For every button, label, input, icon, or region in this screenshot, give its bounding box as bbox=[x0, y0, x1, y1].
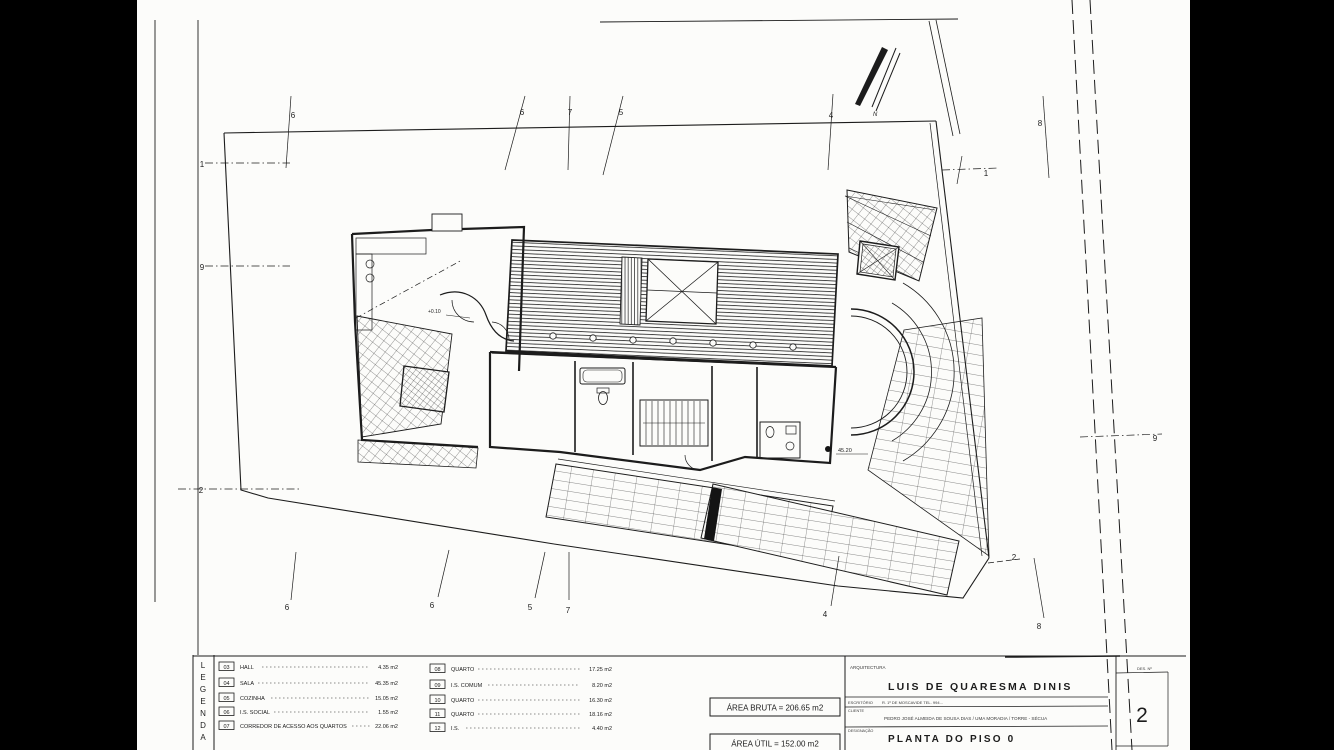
designation: PLANTA DO PISO 0 bbox=[888, 734, 1015, 745]
designation-label: DESIGNAÇÃO bbox=[848, 728, 873, 733]
legend-item-name: I.S. bbox=[451, 726, 460, 732]
grid-marker-top: 6 bbox=[520, 108, 525, 117]
entry-level: +0.10 bbox=[428, 309, 441, 315]
grid-marker-bottom: 6 bbox=[430, 601, 435, 610]
legend-item-name: CORREDOR DE ACESSO AOS QUARTOS bbox=[240, 724, 347, 730]
grid-marker-2: 2 bbox=[1012, 553, 1017, 562]
legend-item-name: QUARTO bbox=[451, 667, 475, 673]
office-label: ESCRITÓRIO bbox=[848, 700, 873, 705]
title-section-label: ARQUITECTURA bbox=[850, 665, 886, 670]
deck-steps bbox=[620, 257, 642, 325]
architect-name: LUIS DE QUARESMA DINIS bbox=[888, 681, 1073, 693]
legend-letter: N bbox=[200, 709, 206, 718]
legend-letter: A bbox=[200, 733, 206, 742]
legend-item-name: COZINHA bbox=[240, 696, 265, 702]
grid-marker-top: 7 bbox=[568, 108, 573, 117]
client-label: CLIENTE bbox=[848, 709, 865, 713]
legend-item-number: 10 bbox=[434, 698, 440, 704]
sheet-number-label: DES. Nº bbox=[1137, 666, 1152, 671]
legend-item-number: 08 bbox=[434, 667, 440, 673]
scanned-drawing-sheet: N bbox=[0, 0, 1334, 750]
north-label: N bbox=[873, 112, 878, 118]
grid-marker-right: 9 bbox=[1153, 434, 1158, 443]
legend-item-name: HALL bbox=[240, 665, 254, 671]
legend-letter: G bbox=[200, 685, 206, 694]
legend-item-area: 18.16 m2 bbox=[589, 712, 612, 718]
legend-item-name: I.S. SOCIAL bbox=[240, 710, 270, 716]
grid-marker-bottom: 8 bbox=[1037, 622, 1042, 631]
legend-item-number: 09 bbox=[434, 683, 440, 689]
legend-letter: E bbox=[200, 697, 205, 706]
grid-marker-bottom: 5 bbox=[528, 603, 533, 612]
legend-item-name: QUARTO bbox=[451, 712, 475, 718]
legend-item-number: 07 bbox=[223, 724, 229, 730]
legend-letter: D bbox=[200, 721, 206, 730]
legend-item-area: 4.35 m2 bbox=[378, 665, 398, 671]
legend-item-area: 4.40 m2 bbox=[592, 726, 612, 732]
legend-item-number: 06 bbox=[223, 710, 229, 716]
grid-marker-top: 8 bbox=[1038, 119, 1043, 128]
client-info: PEDRO JOSÉ ALMEIDA DE SOUSA DIAS / UMA M… bbox=[884, 715, 1048, 721]
legend-item-number: 05 bbox=[223, 696, 229, 702]
deck-terrace bbox=[492, 240, 838, 367]
legend-item-name: QUARTO bbox=[451, 698, 475, 704]
legend-item-name: SALA bbox=[240, 681, 254, 687]
grid-marker-top: 6 bbox=[291, 111, 296, 120]
legend-item-area: 8.20 m2 bbox=[592, 683, 612, 689]
legend-item-number: 11 bbox=[435, 712, 441, 718]
skylight bbox=[646, 259, 718, 324]
legend-item-area: 15.05 m2 bbox=[375, 696, 398, 702]
legend-letter: L bbox=[201, 661, 206, 670]
grid-marker-left: 9 bbox=[200, 263, 205, 272]
legend-item-area: 17.25 m2 bbox=[589, 667, 612, 673]
benchmark-level: 45.20 bbox=[838, 448, 852, 454]
grid-marker-top: 5 bbox=[619, 108, 624, 117]
pool-square bbox=[857, 241, 899, 280]
grid-marker-top: 4 bbox=[829, 111, 834, 120]
office-info: R. 1º DE MOSCAVIDE TEL. 994… bbox=[882, 700, 944, 705]
area-util: ÁREA ÚTIL = 152.00 m2 bbox=[731, 740, 819, 749]
area-bruta: ÁREA BRUTA = 206.65 m2 bbox=[727, 704, 824, 713]
legend-letter: E bbox=[200, 673, 205, 682]
grid-marker-left: 1 bbox=[200, 160, 205, 169]
legend-item-area: 22.06 m2 bbox=[375, 724, 398, 730]
legend-item-area: 1.55 m2 bbox=[378, 710, 398, 716]
grid-marker-bottom: 7 bbox=[566, 606, 571, 615]
legend-title: L E G E N D A bbox=[200, 661, 206, 742]
grid-marker-right: 1 bbox=[984, 169, 989, 178]
legend-item-number: 04 bbox=[223, 681, 229, 687]
sheet-number: 2 bbox=[1136, 704, 1148, 727]
grid-marker-bottom: 6 bbox=[285, 603, 290, 612]
floor-plan-canvas: N bbox=[0, 0, 1334, 750]
grid-marker-bottom: 4 bbox=[823, 610, 828, 619]
legend-item-area: 45.35 m2 bbox=[375, 681, 398, 687]
grid-marker-left: 2 bbox=[199, 486, 204, 495]
legend-item-number: 12 bbox=[434, 726, 440, 732]
legend-item-number: 03 bbox=[223, 665, 229, 671]
legend-item-area: 16.30 m2 bbox=[589, 698, 612, 704]
legend-item-name: I.S. COMUM bbox=[451, 683, 483, 689]
